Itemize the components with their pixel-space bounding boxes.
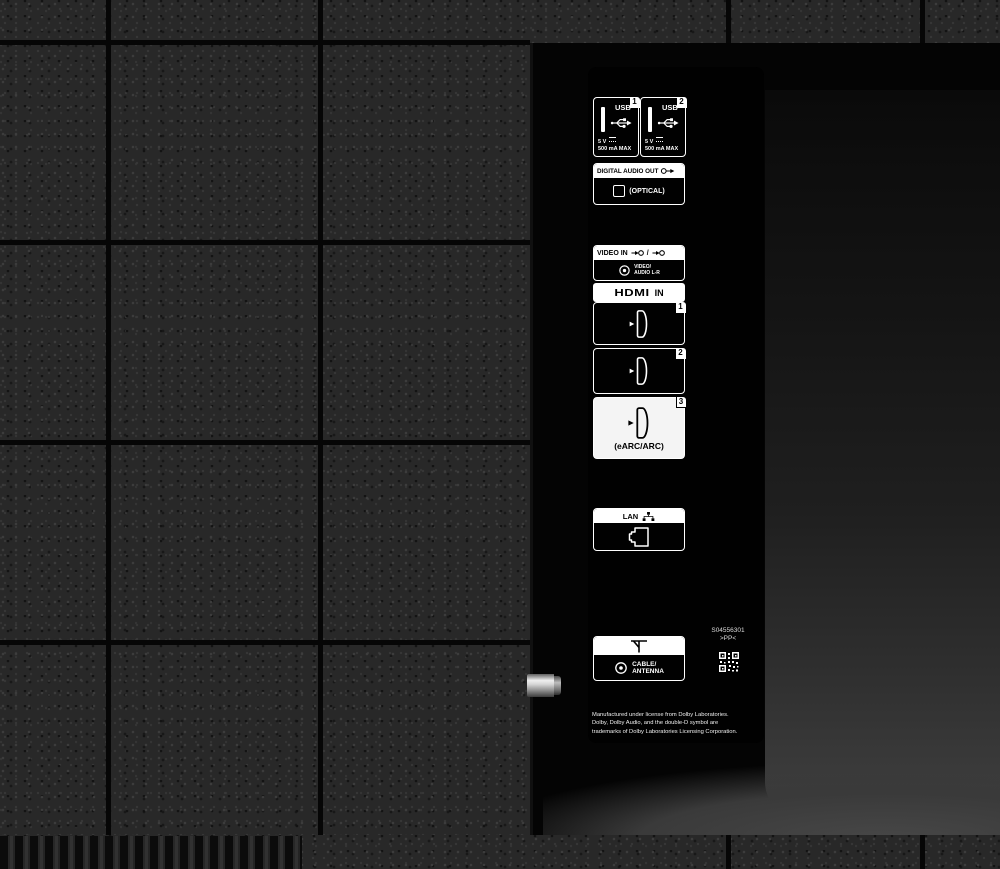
- port-number-badge: 3: [676, 397, 686, 408]
- hdmi-port-1: 1: [593, 302, 685, 345]
- dolby-line2: Dolby, Dolby Audio, and the double-D sym…: [592, 719, 762, 727]
- port-number-badge: 2: [676, 348, 686, 359]
- grid-line: [920, 0, 925, 43]
- grid-line: [0, 440, 530, 445]
- antenna-icon: [629, 639, 649, 653]
- usb-voltage: 5 V: [645, 139, 653, 145]
- part-number: S04556301 >PP<: [700, 627, 756, 643]
- hdmi-in-header: HDMI IN: [593, 283, 685, 302]
- video-in-label: VIDEO IN: [597, 250, 628, 257]
- dolby-line3: trademarks of Dolby Laboratories Licensi…: [592, 728, 762, 736]
- network-icon: [642, 512, 655, 521]
- hdmi-logo: HDMI: [614, 287, 649, 299]
- antenna-connector-cap: [554, 676, 561, 695]
- usb-slot-graphic: [601, 107, 605, 132]
- grid-line: [0, 40, 530, 45]
- hdmi-connector-icon: [627, 406, 651, 440]
- grid-line: [0, 640, 530, 645]
- usb-current: 500 mA MAX: [598, 146, 631, 153]
- usb-port-2: 2 USB 5 V 500 mA MAX: [640, 97, 686, 157]
- hdmi-in-suffix: IN: [655, 288, 664, 298]
- usb-port-1: 1 USB 5 V 500 mA MAX: [593, 97, 639, 157]
- input-icon: [631, 249, 644, 257]
- cable-label-line1: CABLE/: [632, 661, 664, 668]
- dc-symbol-icon: [609, 137, 616, 142]
- part-number-value: S04556301: [700, 627, 756, 635]
- dolby-line1: Manufactured under license from Dolby La…: [592, 711, 762, 719]
- grid-line: [726, 0, 731, 43]
- ventilation-slats: [0, 836, 302, 869]
- grid-line: [106, 0, 111, 835]
- grid-line: [318, 0, 323, 835]
- av-jack-icon: [618, 264, 631, 277]
- dolby-license-notice: Manufactured under license from Dolby La…: [592, 711, 762, 736]
- qr-code: [718, 651, 740, 673]
- input-icon: [652, 249, 665, 257]
- port-label-panel: 1 USB 5 V 500 mA MAX 2 USB: [588, 67, 764, 743]
- ethernet-jack-icon: [627, 525, 651, 549]
- grid-line: [726, 835, 731, 869]
- usb-slot-graphic: [648, 107, 652, 132]
- coax-connector-icon: [614, 661, 628, 675]
- cable-antenna-port: CABLE/ ANTENNA: [593, 636, 685, 681]
- hdmi-connector-icon: [628, 309, 650, 339]
- antenna-connector-stub: [527, 674, 554, 697]
- audio-output-icon: [660, 167, 675, 175]
- usb-label: USB: [615, 103, 631, 112]
- lan-label: LAN: [623, 512, 638, 521]
- optical-port-graphic: [613, 185, 625, 197]
- usb-voltage: 5 V: [598, 139, 606, 145]
- port-number-badge: 1: [630, 97, 640, 108]
- digital-audio-out-port: DIGITAL AUDIO OUT (OPTICAL): [593, 163, 685, 205]
- av-jack-label-line2: AUDIO L-R: [634, 270, 660, 276]
- cable-label-line2: ANTENNA: [632, 668, 664, 675]
- usb-trident-icon: [657, 116, 679, 130]
- chassis-texture-top: [530, 0, 1000, 43]
- chassis-texture-left: [0, 0, 533, 835]
- earc-arc-label: (eARC/ARC): [614, 441, 664, 451]
- hdmi-port-3-earc: 3 (eARC/ARC): [593, 397, 685, 459]
- resin-code: >PP<: [700, 635, 756, 643]
- usb-label: USB: [662, 103, 678, 112]
- separator: /: [647, 250, 649, 257]
- hdmi-connector-icon: [628, 356, 650, 386]
- av-jack-label: VIDEO/ AUDIO L-R: [634, 264, 660, 276]
- cable-antenna-label: CABLE/ ANTENNA: [632, 661, 664, 675]
- dc-symbol-icon: [656, 137, 663, 142]
- grid-line: [0, 240, 530, 245]
- usb-power-rating: 5 V 500 mA MAX: [598, 137, 631, 153]
- usb-current: 500 mA MAX: [645, 146, 678, 153]
- lan-port: LAN: [593, 508, 685, 551]
- port-number-badge: 1: [676, 302, 686, 313]
- usb-power-rating: 5 V 500 mA MAX: [645, 137, 678, 153]
- grid-line: [920, 835, 925, 869]
- tv-back-panel-photo: 1 USB 5 V 500 mA MAX 2 USB: [0, 0, 1000, 869]
- port-number-badge: 2: [677, 97, 687, 108]
- hdmi-port-2: 2: [593, 348, 685, 394]
- video-in-port: VIDEO IN / VIDEO/: [593, 245, 685, 281]
- recess-back-wall: [765, 90, 1000, 818]
- usb-trident-icon: [610, 116, 632, 130]
- optical-label: (OPTICAL): [629, 188, 664, 195]
- digital-audio-out-label: DIGITAL AUDIO OUT: [597, 168, 658, 175]
- recess-floor-highlight: [543, 745, 1000, 835]
